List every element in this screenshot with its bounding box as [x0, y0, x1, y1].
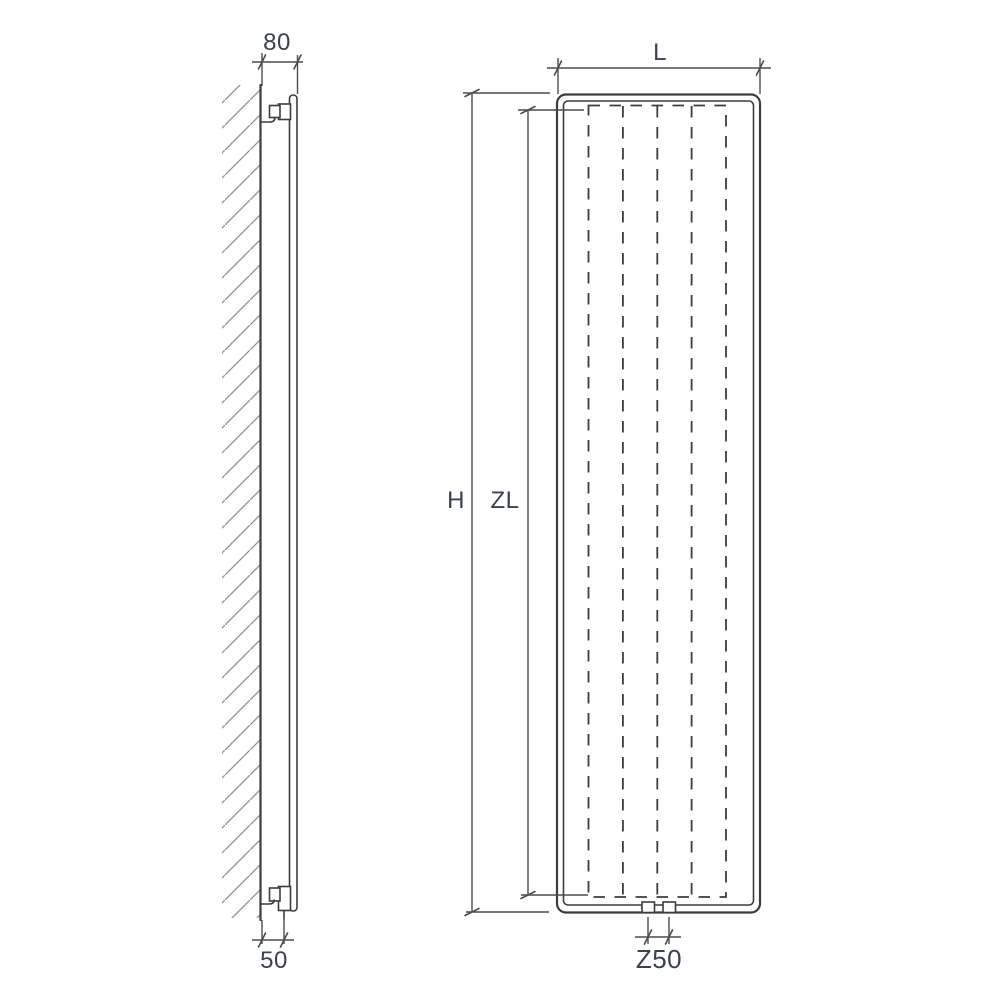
dimension-label-offset: 50 — [260, 947, 288, 974]
dimension-offset-50: 50 — [252, 919, 294, 974]
front-view: L H ZL Z50 — [447, 39, 771, 974]
wall-bracket-top — [261, 104, 291, 122]
dimension-label-element-height: ZL — [490, 487, 519, 514]
dimension-label-width: L — [653, 39, 667, 66]
connection-nozzle-left — [642, 902, 655, 913]
radiator-front-panel — [557, 95, 760, 913]
technical-drawing-canvas: 80 50 — [0, 0, 1000, 1000]
bracket-bottom-clip — [270, 888, 281, 901]
radiator-side-profile — [290, 95, 298, 911]
dimension-label-depth: 80 — [263, 29, 291, 56]
dimension-connection-Z50: Z50 — [635, 917, 682, 974]
radiator-dimension-drawing: 80 50 — [0, 0, 1000, 1000]
dimension-width-L: L — [547, 39, 771, 94]
connection-nozzle-right — [663, 902, 676, 913]
wall-bracket-bottom — [261, 887, 291, 920]
dimension-label-connection-spacing: Z50 — [636, 944, 682, 974]
bracket-top-clip — [270, 106, 281, 118]
side-view: 80 50 — [222, 29, 303, 974]
wall-hatch — [222, 85, 260, 918]
dimension-label-height: H — [447, 487, 465, 514]
dimension-depth-80: 80 — [252, 29, 303, 94]
